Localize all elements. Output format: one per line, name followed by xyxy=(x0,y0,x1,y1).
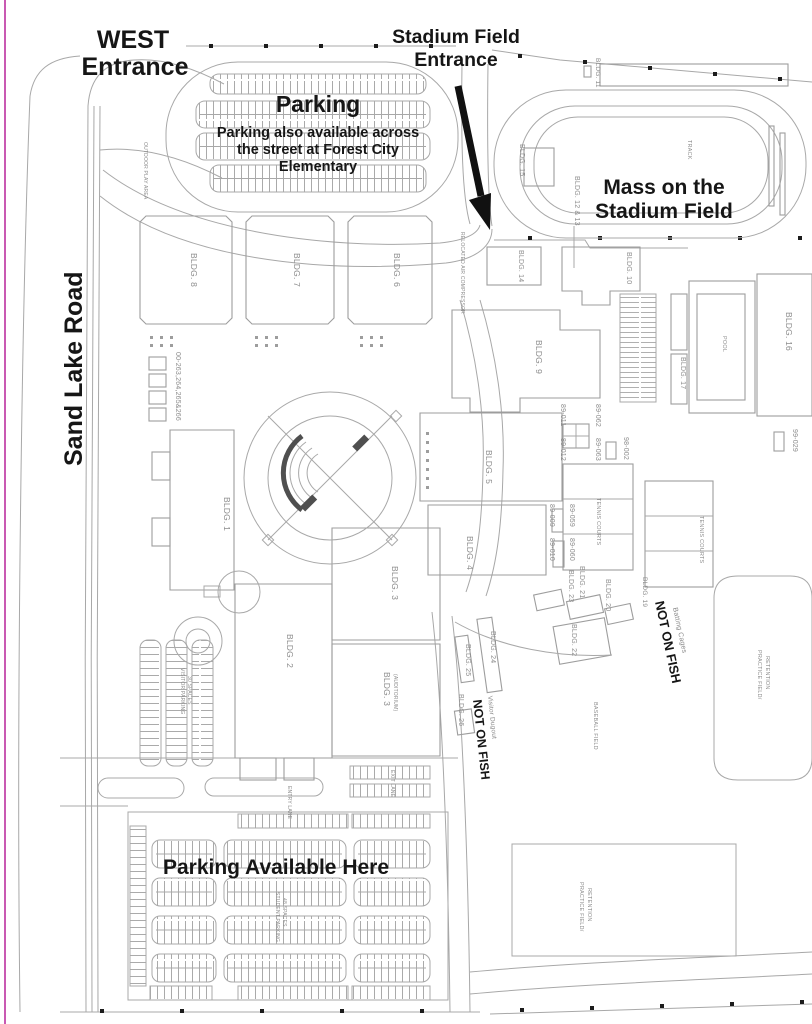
practice-field-east-label-1: PRACTICE FIELD/ xyxy=(756,650,762,700)
bldg-15-label: BLDG. 15 xyxy=(518,144,525,176)
tennis-courts-east-label: TENNIS COURTS xyxy=(698,516,704,564)
fence-post xyxy=(100,1009,104,1013)
fence-post xyxy=(648,66,652,70)
fence-post xyxy=(800,1000,804,1004)
track-label: TRACK xyxy=(686,140,692,160)
visitor-parking-label-2: 30 SPACES xyxy=(186,676,192,705)
fence-post xyxy=(590,1006,594,1010)
parking-comb xyxy=(238,814,348,828)
practice-field-south-label-1: PRACTICE FIELD/ xyxy=(578,882,584,932)
code-89-063-label: 89-063 xyxy=(594,438,601,461)
bldg-22-shape xyxy=(553,618,611,664)
bldg-2-annex-a xyxy=(240,758,276,780)
relocated-compressor-label: RELOCATED AIR COMPRESSOR xyxy=(459,232,465,314)
fence-post xyxy=(528,236,532,240)
bldg-16-label: BLDG. 16 xyxy=(784,312,794,351)
bldg-5-label: BLDG. 5 xyxy=(484,450,494,484)
code-99-029-shape xyxy=(774,432,784,451)
bldg-5-columns xyxy=(426,432,429,489)
bldg-26-label: BLDG. 26 xyxy=(457,694,464,726)
stadium-entrance-label-line1: Stadium Field xyxy=(392,26,520,48)
sand-lake-road-east-edge-3 xyxy=(97,106,100,1012)
parking-comb xyxy=(352,986,430,1000)
practice-field-east-shape xyxy=(714,576,812,780)
athletic-cluster xyxy=(454,576,812,956)
sand-lake-road-west-edge xyxy=(19,96,30,1012)
sand-lake-road-east-edge-1 xyxy=(85,106,88,1012)
bldg-8-label: BLDG. 8 xyxy=(189,253,199,287)
bldg-10-label: BLDG. 10 xyxy=(625,252,632,284)
code-98-002-shape xyxy=(606,442,616,459)
parking-row-band xyxy=(152,954,430,982)
amphitheater-stage-block xyxy=(352,435,369,452)
fence-post xyxy=(518,54,522,58)
outdoor-play-area-label: OUTDOOR PLAY AREA xyxy=(142,142,148,200)
cluster-small-bldg xyxy=(534,589,565,610)
bldg-19-label: BLDG. 19 xyxy=(641,577,648,607)
parking-row xyxy=(140,640,161,766)
parking-comb xyxy=(238,986,348,1000)
walkway-dots xyxy=(150,336,383,347)
home-bleachers xyxy=(600,64,788,86)
sand-lake-road-east-edge-2 xyxy=(91,106,94,1012)
campus-map-page: BLDG. 8 BLDG. 7 BLDG. 6 BLDG. 9 BLDG. 14… xyxy=(0,0,812,1024)
bldg-1-wing-a xyxy=(152,452,170,480)
bldg-2-label: BLDG. 2 xyxy=(285,634,295,668)
bleacher-strip-2 xyxy=(780,133,785,215)
code-89-012-label: 89-012 xyxy=(559,438,566,461)
amphitheater-arc xyxy=(307,454,318,492)
amphitheater-arc xyxy=(299,448,312,498)
bldg-1-wing-b xyxy=(152,518,170,546)
bldg-4-shape xyxy=(428,505,546,575)
bldg-25-label: BLDG. 25 xyxy=(464,644,471,676)
sand-lake-road-label: Sand Lake Road xyxy=(60,272,88,467)
west-entrance-label-line2: Entrance xyxy=(82,53,189,81)
bldg-3-shape xyxy=(332,528,440,640)
practice-field-south-label-2: RETENTION xyxy=(586,888,592,922)
bleacher-strip-1 xyxy=(769,126,774,206)
bldg-9-label: BLDG. 9 xyxy=(534,340,544,374)
south-east-road-lower xyxy=(470,974,812,994)
bldg-3-auditorium-sub-label: (AUDITORIUM) xyxy=(392,674,398,711)
stadium-entrance-arrow-head xyxy=(469,193,491,230)
fence-post xyxy=(778,77,782,81)
bldg-22-label: BLDG. 22 xyxy=(570,624,577,656)
fence-post xyxy=(340,1009,344,1013)
amphitheater-stage-block xyxy=(300,495,317,512)
student-parking-label-1: STUDENT PARKING xyxy=(274,892,280,942)
bldg-11-shape xyxy=(584,66,591,77)
parking-note-line1: Parking also available across xyxy=(217,125,419,141)
bldg-14-label: BLDG. 14 xyxy=(517,250,524,282)
code-89-062-label: 89-062 xyxy=(594,404,601,427)
ribbed-courtyard xyxy=(620,294,656,402)
parking-comb xyxy=(150,986,212,1000)
fence-post xyxy=(180,1009,184,1013)
fence-post xyxy=(520,1008,524,1012)
mass-label-line1: Mass on the xyxy=(603,176,724,199)
south-east-road-upper xyxy=(470,952,812,972)
bldg-23-label: BLDG. 23 xyxy=(567,570,574,602)
tennis-courts-west-label: TENNIS COURTS xyxy=(595,498,601,546)
bldg-17-shape-a xyxy=(671,294,687,350)
fence-post xyxy=(713,72,717,76)
bldg-6-shape xyxy=(348,216,432,324)
fence-post xyxy=(798,236,802,240)
sand-lake-road-corner xyxy=(30,56,80,96)
bldg-2-annex-b xyxy=(284,758,314,780)
mass-label-line2: Stadium Field xyxy=(595,200,733,223)
pool-label: POOL xyxy=(721,336,727,352)
portable-shape xyxy=(149,408,166,421)
stadium-field xyxy=(494,64,806,268)
portable-shape xyxy=(149,374,166,387)
fence-post xyxy=(264,44,268,48)
portable-shape xyxy=(149,391,166,404)
fence-post xyxy=(209,44,213,48)
fence-post xyxy=(420,1009,424,1013)
parking-row-band xyxy=(152,878,430,906)
practice-field-south-shape xyxy=(512,844,736,956)
fountain-circle xyxy=(218,571,260,613)
code-89-009-label: 89-009 xyxy=(548,504,555,527)
exit-lane-label: EXIT LANE xyxy=(389,770,395,798)
south-fence-east xyxy=(490,1004,812,1014)
parking-available-label: Parking Available Here xyxy=(163,856,389,879)
bldg-1-label: BLDG. 1 xyxy=(222,497,232,531)
quad-node-diamond xyxy=(390,410,401,421)
bldg-3-label: BLDG. 3 xyxy=(390,566,400,600)
fence-post xyxy=(319,44,323,48)
code-89-011-label: 89-011 xyxy=(559,404,566,426)
code-89-010-label: 89-010 xyxy=(548,538,555,561)
parking-comb xyxy=(352,814,430,828)
pool-basin xyxy=(697,294,745,400)
student-parking-label-2: 48 SPACES xyxy=(281,898,287,927)
bldg-20-label: BLDG. 20 xyxy=(604,579,611,611)
bldg-12-13-label: BLDG. 12 & 13 xyxy=(573,176,580,226)
bldg-14-shape xyxy=(487,247,541,285)
fence-post xyxy=(260,1009,264,1013)
code-98-002-label: 98-002 xyxy=(622,437,629,460)
parking-note-line2: the street at Forest City xyxy=(237,142,399,158)
bldg-11-label: BLDG. 11 xyxy=(594,58,601,88)
bldg-8-shape xyxy=(140,216,232,324)
parking-row-band xyxy=(152,916,430,944)
fence-post xyxy=(374,44,378,48)
code-89-060-label: 89-060 xyxy=(568,538,575,561)
parking-title-label: Parking xyxy=(276,91,360,117)
practice-field-east-label-2: RETENTION xyxy=(764,656,770,690)
bldg-9-shape xyxy=(452,310,600,412)
visitor-parking-label-1: VISITOR PARKING xyxy=(179,668,185,714)
stadium-entrance-label-line2: Entrance xyxy=(414,49,498,71)
bldg-21-label: BLDG. 21 xyxy=(578,566,585,598)
bldg-4-label: BLDG. 4 xyxy=(465,536,475,570)
bldg-3-auditorium-label: BLDG. 3 xyxy=(382,672,392,706)
stadium-entrance-arrow-shaft xyxy=(458,86,481,196)
portables-label: 00-263,264,265&266 xyxy=(174,352,181,421)
bldg-6-label: BLDG. 6 xyxy=(392,253,402,287)
visitor-parking-lot xyxy=(140,640,213,766)
portable-shape xyxy=(149,357,166,370)
code-89-059-label: 89-059 xyxy=(568,504,575,527)
campus-map-svg: BLDG. 8 BLDG. 7 BLDG. 6 BLDG. 9 BLDG. 14… xyxy=(0,0,812,1024)
entry-lane-label: ENTRY LANE xyxy=(286,786,292,820)
west-entrance-label-line1: WEST xyxy=(97,26,169,54)
fence-post xyxy=(660,1004,664,1008)
bldg-7-label: BLDG. 7 xyxy=(292,253,302,287)
bldg-17-label: BLDG. 17 xyxy=(679,357,686,389)
parking-row xyxy=(192,640,213,766)
road-island-1 xyxy=(98,778,184,798)
parking-note-line3: Elementary xyxy=(279,159,357,175)
bldg-15-shape xyxy=(524,148,554,186)
road-island-2 xyxy=(205,778,323,796)
bldg-24-label: BLDG. 24 xyxy=(489,631,496,663)
parking-comb xyxy=(130,826,146,986)
campus-buildings xyxy=(140,216,812,780)
fence-post xyxy=(583,60,587,64)
fence-post xyxy=(730,1002,734,1006)
code-99-029-label: 99-029 xyxy=(791,429,798,452)
baseball-field-label: BASEBALL FIELD xyxy=(592,702,598,750)
